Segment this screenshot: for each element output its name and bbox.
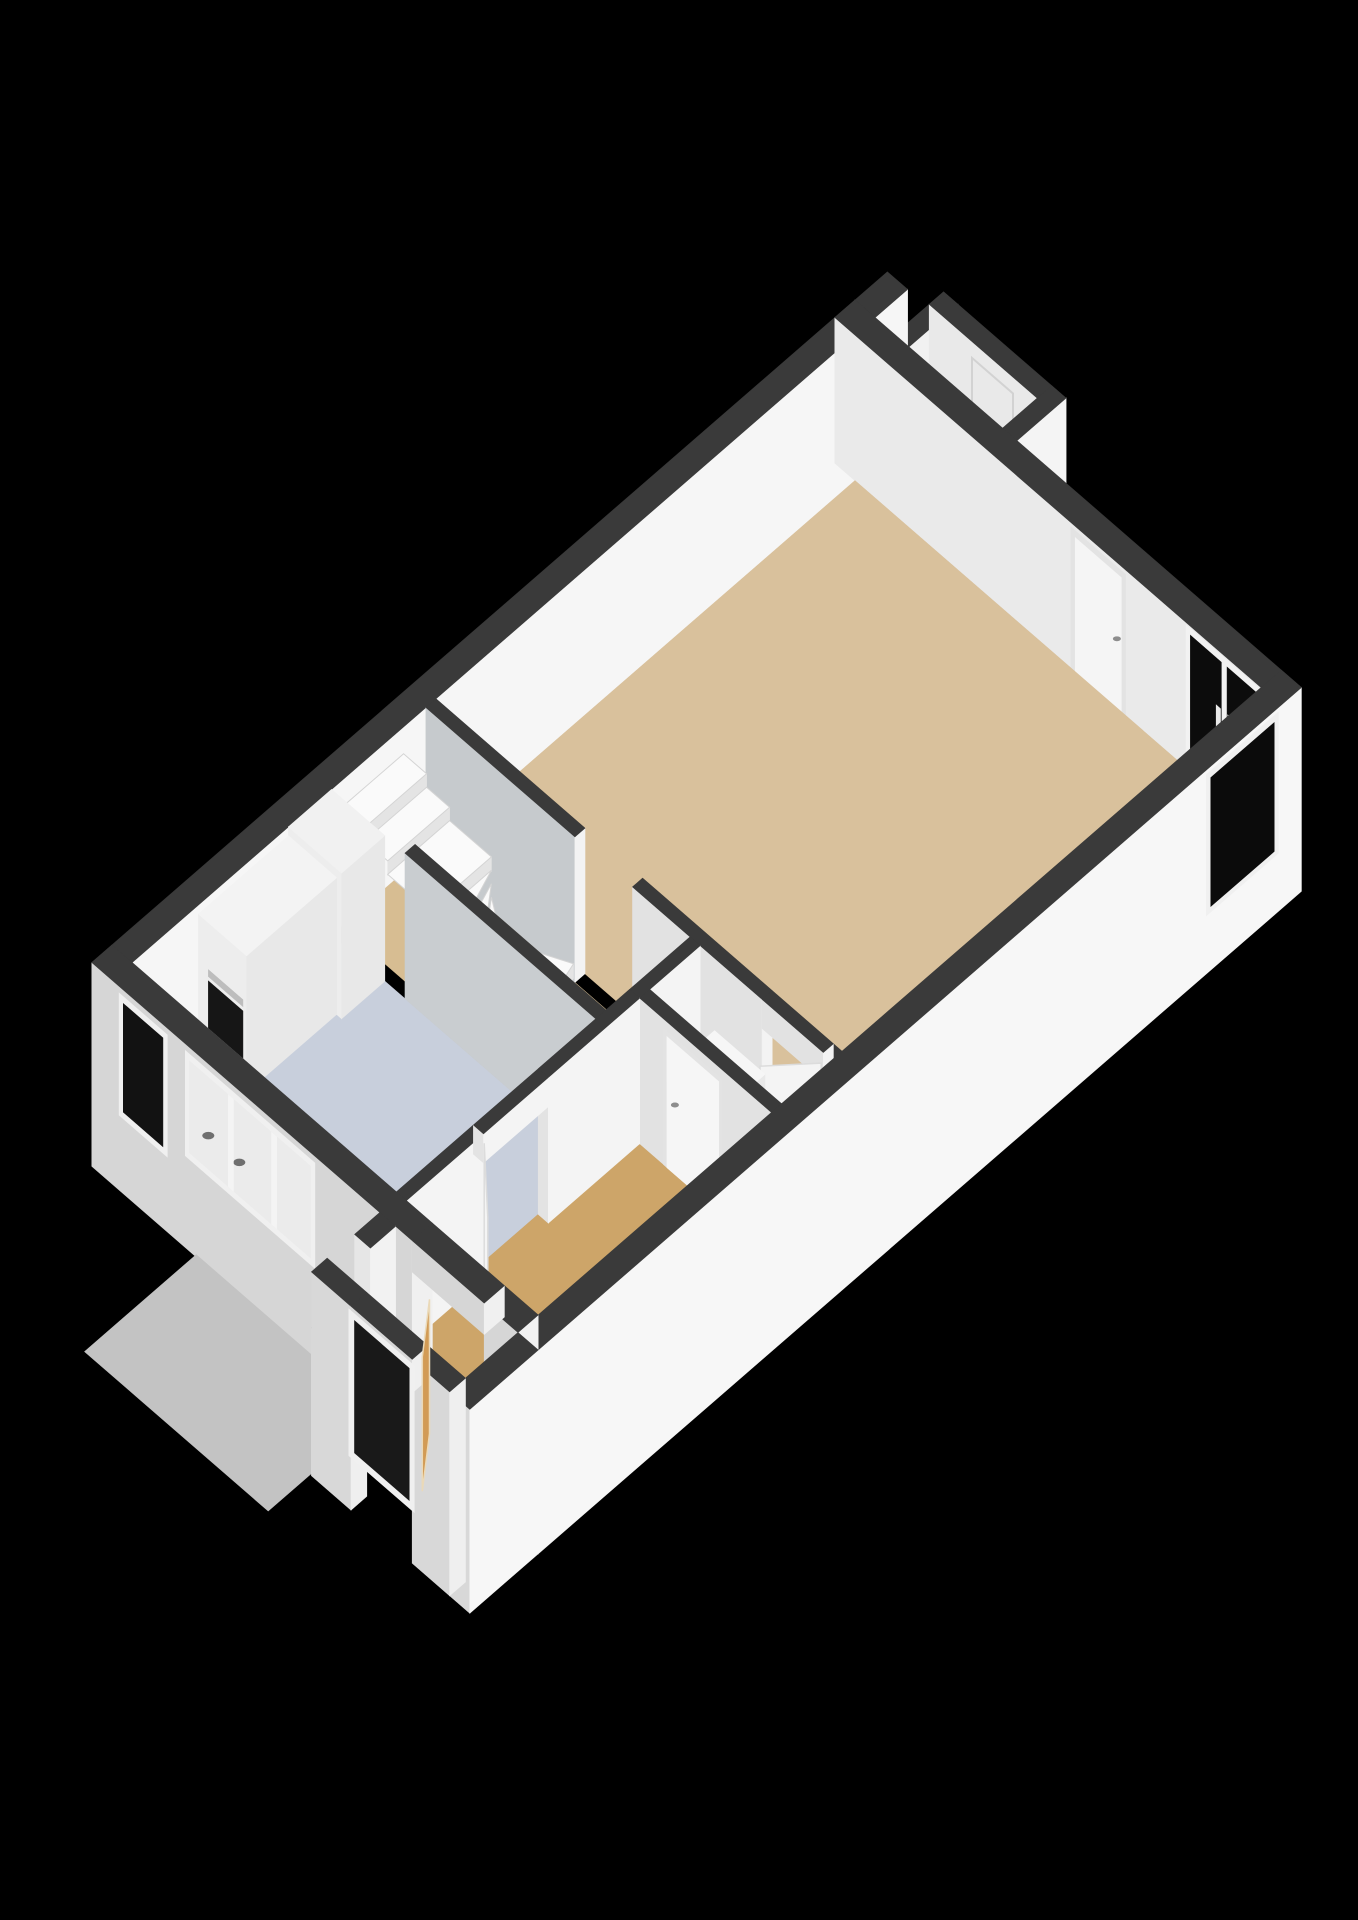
vestibule-wall-sw-b-face-sw [412,1359,449,1595]
kitchen-window-mullion-2-panel [272,1132,277,1228]
kitchen-window-mullion-1-panel [228,1095,233,1191]
floorplan-canvas [0,0,1358,1920]
kitchen-window-mullion-2 [272,1132,277,1228]
toilet-door-handle [671,1103,679,1108]
vestibule-wall-sw-b-face-se [450,1378,466,1596]
wall-stairs-living-face-se [575,828,585,982]
faucet-through-window-1 [202,1132,214,1139]
livingroom-door-handle [1113,636,1121,641]
livingroom-door-handle-shape [1113,636,1121,641]
floorplan-3d-view [0,0,1358,1920]
faucet-through-window-2-shape [233,1159,245,1166]
toilet-door-handle-shape [671,1103,679,1108]
faucet-through-window-2 [233,1159,245,1166]
vestibule-wall-sw-a-face-sw [311,1272,351,1510]
faucet-through-window-1-shape [202,1132,214,1139]
kitchen-window-mullion-1 [228,1095,233,1191]
